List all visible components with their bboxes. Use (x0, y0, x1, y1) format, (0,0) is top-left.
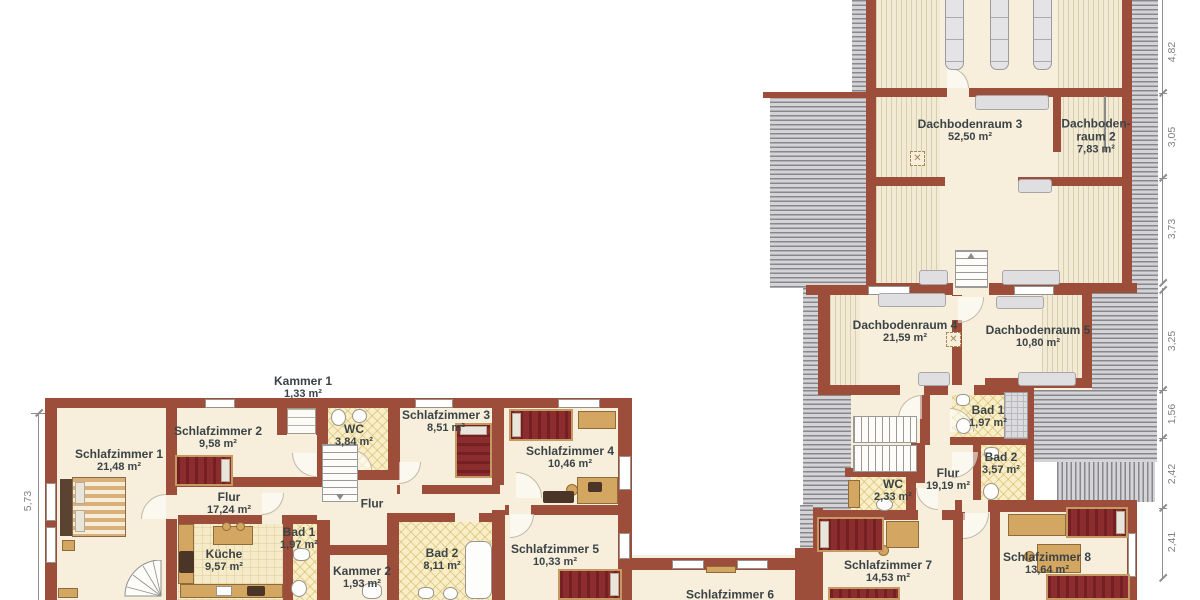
room-label-dachbodenraum5: Dachbodenraum 510,80 m² (986, 324, 1091, 350)
dimension-tick (1159, 574, 1167, 582)
room-label-kueche: Küche9,57 m² (205, 548, 243, 574)
wall (763, 92, 872, 98)
wall (277, 408, 287, 435)
dimension-label: 5,73 (22, 491, 34, 511)
room-label-flur-right: Flur19,19 m² (926, 467, 970, 493)
room-label-schlafzimmer2: Schlafzimmer 29,58 m² (174, 425, 262, 451)
dimension-label: 2,41 (1166, 532, 1178, 552)
dimension-tick (1159, 390, 1167, 391)
plan-graphic: Schlafzimmer 5 (511, 543, 599, 556)
plan-graphic: Flur (218, 491, 241, 504)
wall (876, 88, 947, 97)
dimension-label: 2,42 (1166, 464, 1178, 484)
plan-graphic: Schlafzimmer 7 (844, 559, 932, 572)
window (205, 399, 235, 408)
chair (236, 522, 245, 531)
dimension-tick (1159, 93, 1167, 94)
roof-hatch (803, 288, 818, 390)
plan-graphic: Dachbodenraum 4 (853, 319, 958, 332)
plan-graphic: 13,64 m² (1025, 564, 1069, 577)
wall (876, 177, 945, 186)
wall (390, 513, 505, 522)
dresser (58, 588, 78, 598)
wall (492, 510, 505, 600)
shelf (848, 480, 860, 508)
kitchen-sink (216, 586, 232, 596)
plan-graphic: Schlafzimmer 3 (402, 409, 490, 422)
plan-graphic: 21,59 m² (883, 332, 927, 345)
room-label-kammer2: Kammer 21,93 m² (333, 565, 391, 591)
nightstand (62, 540, 75, 551)
roof-hatch (1057, 462, 1155, 502)
plan-graphic: 21,48 m² (97, 461, 141, 474)
tv-board (543, 491, 574, 503)
plan-graphic: 2,33 m² (874, 491, 912, 504)
dimension-tick (1159, 286, 1167, 294)
sink (352, 409, 367, 423)
pillow (75, 510, 85, 532)
window (46, 527, 56, 563)
bench (1018, 179, 1052, 193)
dimension-label: 3,73 (1166, 219, 1178, 239)
door-opening (166, 495, 177, 519)
plan-graphic: Küche (206, 548, 243, 561)
sink (956, 394, 970, 406)
plan-graphic: 9,57 m² (205, 561, 243, 574)
room-label-schlafzimmer4: Schlafzimmer 410,46 m² (526, 445, 614, 471)
wall (1053, 88, 1061, 152)
dimension-line (1162, 0, 1163, 283)
wall (330, 545, 387, 555)
room-label-dachbodenraum3: Dachbodenraum 352,50 m² (918, 118, 1023, 144)
dimension-tick (1159, 438, 1167, 439)
window (619, 456, 631, 490)
kammer1-closet (287, 408, 316, 434)
plan-graphic: WC (344, 423, 364, 436)
roof-hatch (1030, 390, 1157, 462)
window (737, 560, 768, 569)
room-label-flur-left2: Flur (361, 498, 384, 511)
pillow (221, 459, 230, 482)
dimension-label: 3,05 (1166, 127, 1178, 147)
plan-graphic: Bad 2 (426, 547, 459, 560)
plan-graphic: Schlafzimmer 8 (1003, 551, 1091, 564)
door-opening (400, 485, 422, 494)
wall (795, 548, 813, 600)
plan-graphic: Flur (937, 467, 960, 480)
plan-graphic: Dachbodenraum 5 (986, 324, 1091, 337)
room-label-schlafzimmer7: Schlafzimmer 714,53 m² (844, 559, 932, 585)
kitchen-appliance (179, 551, 194, 573)
plan-graphic: raum 2 (1076, 131, 1115, 144)
room-label-schlafzimmer3: Schlafzimmer 38,51 m² (402, 409, 490, 435)
room-label-dachbodenraum2: Dachboden-raum 27,83 m² (1061, 118, 1130, 157)
plan-graphic: 1,93 m² (343, 578, 381, 591)
room-label-wc-right: WC2,33 m² (874, 478, 912, 504)
room-label-bad1-left: Bad 11,97 m² (280, 526, 318, 552)
window (1014, 286, 1054, 295)
plan-graphic: 1,97 m² (280, 539, 318, 552)
pillow (820, 521, 829, 548)
chair (222, 522, 231, 531)
dimension-label: 1,56 (1166, 404, 1178, 424)
plan-graphic: 7,83 m² (1077, 144, 1115, 157)
roof-hatch (1132, 0, 1158, 300)
bathtub (465, 541, 492, 599)
plan-graphic: Flur (361, 498, 384, 511)
plan-graphic: 10,46 m² (548, 458, 592, 471)
dimension-tick (1159, 508, 1167, 509)
dimension-tick (1159, 178, 1167, 179)
room-label-bad2-left: Bad 28,11 m² (423, 547, 460, 573)
plan-graphic: Dachbodenraum 3 (918, 118, 1023, 131)
pillow (610, 573, 619, 596)
skylight (990, 0, 1009, 70)
plan-graphic: Schlafzimmer 2 (174, 425, 262, 438)
pillow (512, 413, 521, 437)
plan-graphic: 1,33 m² (284, 388, 322, 401)
bed-headboard (60, 479, 72, 536)
wall (316, 408, 326, 435)
wall (492, 408, 504, 485)
wall (317, 520, 330, 600)
laptop (588, 482, 602, 492)
room-label-wc-left: WC3,84 m² (335, 423, 373, 449)
sink (418, 587, 434, 599)
dimension-line (38, 413, 39, 600)
stair-arrow (967, 253, 975, 259)
bed (828, 587, 900, 600)
plan-graphic: 3,84 m² (335, 436, 373, 449)
roof-hatch (770, 97, 872, 288)
window (1128, 533, 1136, 577)
bench (975, 95, 1049, 110)
dresser (1008, 514, 1066, 536)
skylight (1033, 0, 1052, 70)
roof-hatch (803, 390, 851, 510)
chimney-symbol: ✕ (910, 151, 925, 166)
spiral-staircase (113, 560, 167, 600)
wall (866, 0, 876, 292)
window (415, 399, 453, 408)
plan-graphic: 10,80 m² (1016, 337, 1060, 350)
desk (886, 521, 919, 548)
skylight (945, 0, 964, 70)
window (46, 483, 56, 521)
room-label-schlafzimmer5: Schlafzimmer 510,33 m² (511, 543, 599, 569)
wall (953, 512, 963, 600)
plan-graphic: 19,19 m² (926, 480, 970, 493)
room-label-dachbodenraum4: Dachbodenraum 421,59 m² (853, 319, 958, 345)
kitchen-table (213, 526, 253, 545)
plan-graphic: Bad 2 (985, 451, 1018, 464)
shower (1004, 392, 1028, 439)
room-label-schlafzimmer1: Schlafzimmer 121,48 m² (75, 448, 163, 474)
wall (818, 292, 830, 390)
plan-graphic: 1,97 m² (969, 417, 1007, 430)
wall (990, 512, 1000, 600)
floor-plan: ✕ ✕ Dachboden (0, 0, 1200, 600)
windowsill (706, 566, 736, 573)
plan-graphic: Bad 1 (972, 404, 1005, 417)
room-label-bad2-right: Bad 23,57 m² (982, 451, 1020, 477)
staircase-right-upper (853, 416, 917, 443)
door-opening (900, 385, 924, 395)
bench (919, 270, 948, 285)
bench (918, 372, 950, 386)
toilet (983, 483, 999, 500)
plan-graphic: Schlafzimmer 1 (75, 448, 163, 461)
roof-hatch (1092, 288, 1158, 390)
room-label-flur-left: Flur17,24 m² (207, 491, 251, 517)
door-opening (455, 513, 479, 522)
plan-graphic: 8,11 m² (423, 560, 460, 573)
plan-graphic: 9,58 m² (199, 438, 237, 451)
room-label-schlafzimmer8: Schlafzimmer 813,64 m² (1003, 551, 1091, 577)
plan-graphic: WC (883, 478, 903, 491)
dresser (578, 411, 616, 429)
plan-graphic: Schlafzimmer 4 (526, 445, 614, 458)
pillow (75, 482, 85, 504)
plan-graphic (125, 560, 161, 596)
plan-graphic: 52,50 m² (948, 131, 992, 144)
plan-graphic: Kammer 1 (274, 375, 332, 388)
toilet (443, 587, 458, 600)
dimension-label: 3,25 (1166, 331, 1178, 351)
bench (878, 293, 946, 307)
window (558, 399, 600, 408)
stove (247, 586, 265, 596)
bench (1018, 372, 1076, 386)
window (672, 560, 704, 569)
window (619, 533, 630, 559)
door-opening (918, 510, 942, 520)
attic-kneewall-left (876, 0, 940, 288)
room-label-schlafzimmer6: Schlafzimmer 6 (686, 589, 774, 600)
dimension-line (1162, 288, 1163, 578)
dimension-label: 4,82 (1166, 42, 1178, 62)
plan-graphic: Schlafzimmer 6 (686, 589, 774, 600)
toilet (291, 580, 307, 597)
bench (996, 296, 1044, 309)
door-opening (262, 515, 282, 524)
plan-graphic: 17,24 m² (207, 504, 251, 517)
dimension-tick (31, 413, 45, 414)
plan-graphic: Bad 1 (283, 526, 316, 539)
plan-graphic: 14,53 m² (866, 572, 910, 585)
plan-graphic: 8,51 m² (427, 422, 465, 435)
door-opening (962, 500, 988, 512)
plan-graphic: Kammer 2 (333, 565, 391, 578)
bench (1002, 270, 1060, 285)
plan-graphic: 3,57 m² (982, 464, 1020, 477)
room-label-bad1-right: Bad 11,97 m² (969, 404, 1007, 430)
bed (1046, 574, 1130, 600)
plan-graphic: 10,33 m² (533, 556, 577, 569)
wall (45, 398, 632, 408)
room-label-kammer1: Kammer 11,33 m² (274, 375, 332, 401)
pillow (1116, 511, 1125, 534)
stair-arrow (336, 494, 344, 500)
staircase-right-lower (853, 445, 917, 472)
